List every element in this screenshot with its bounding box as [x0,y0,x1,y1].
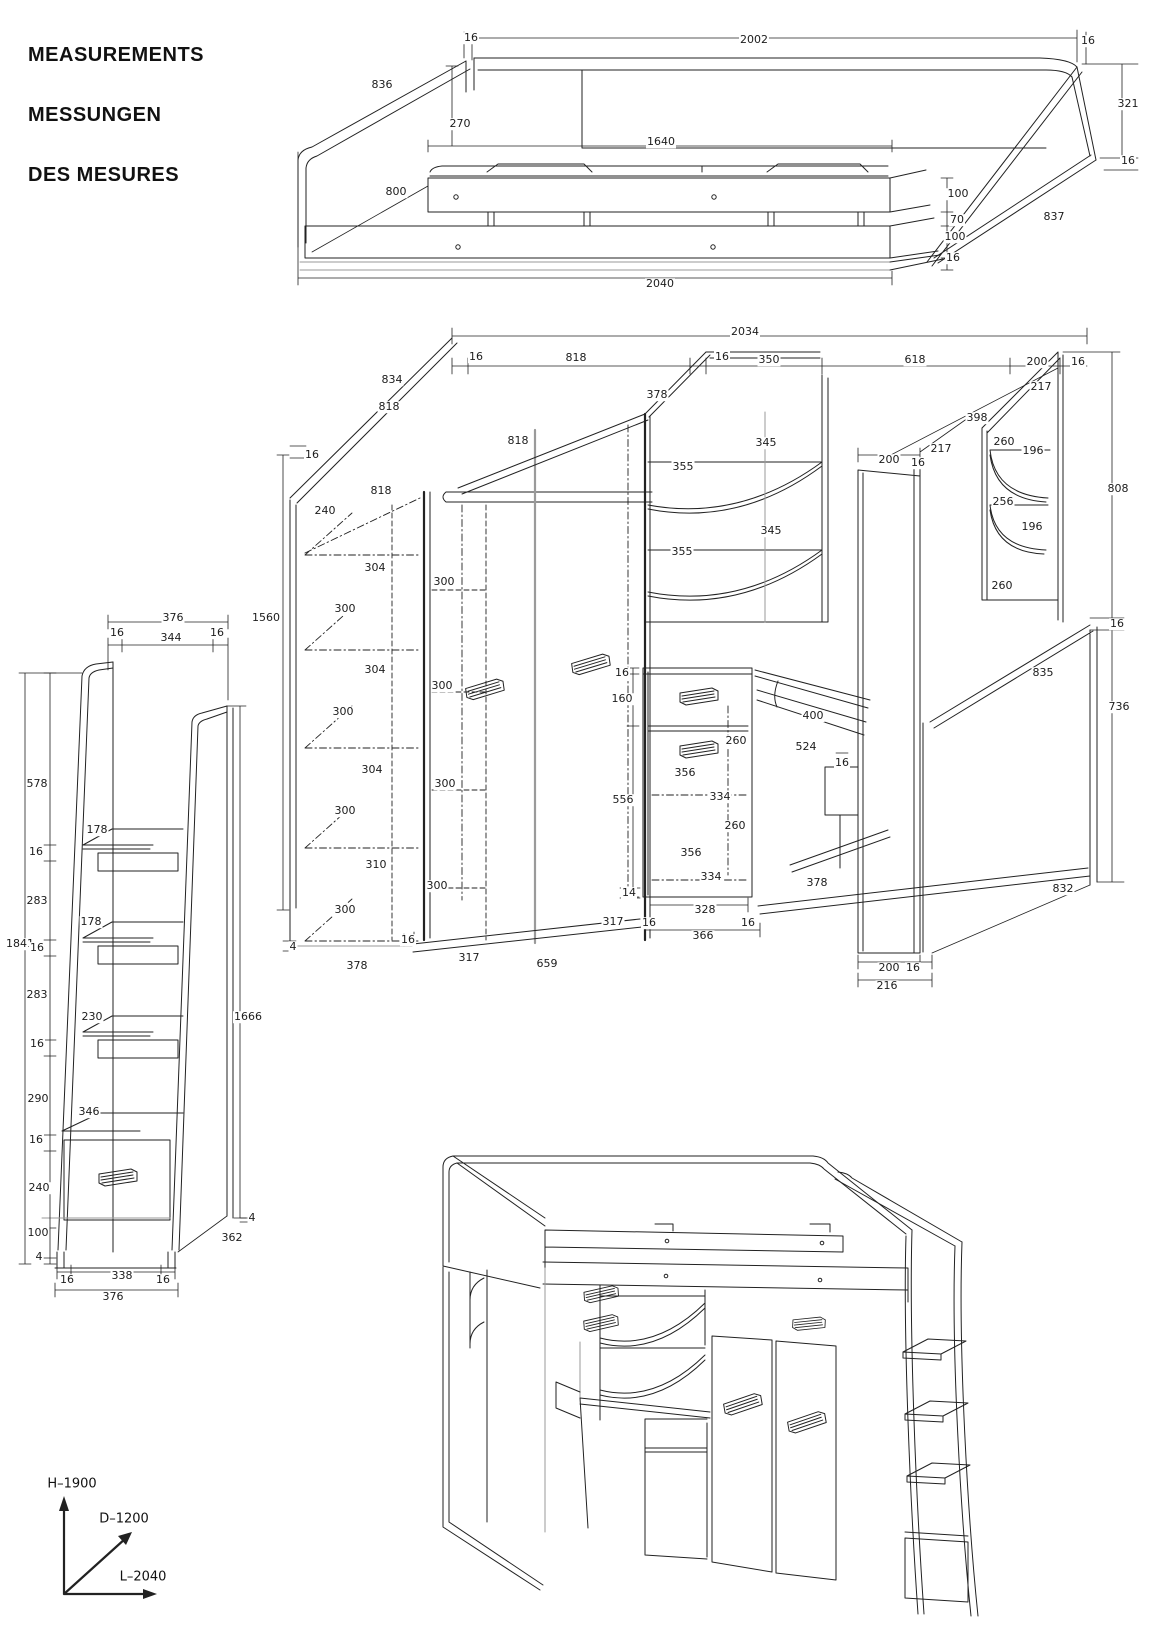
dim-label-ladder-side: 338 [111,1270,134,1282]
dim-label-wardrobe-interior: 355 [671,546,694,558]
dim-label-ladder-side: 16 [109,627,125,639]
dim-label-wardrobe-interior: 304 [364,664,387,676]
dim-label-wardrobe-interior: 378 [646,389,669,401]
dim-label-wardrobe-interior: 400 [802,710,825,722]
dim-label-wardrobe-interior: 160 [611,693,634,705]
dim-label-wardrobe-interior: 14 [621,887,637,899]
dim-label-wardrobe-interior: 16 [910,457,926,469]
dim-label-ladder-side: 178 [86,824,109,836]
dim-label-wardrobe-interior: 256 [992,496,1015,508]
dim-label-wardrobe-interior: 618 [904,354,927,366]
dim-label-wardrobe-interior: 356 [680,847,703,859]
dim-label-ladder-side: 346 [78,1106,101,1118]
dim-label-wardrobe-interior: 334 [709,791,732,803]
dim-label-ladder-side: 362 [221,1232,244,1244]
dim-label-ladder-side: 376 [162,612,185,624]
dim-label-wardrobe-interior: 200 [1026,356,1049,368]
dim-label-ladder-side: 16 [59,1274,75,1286]
dim-label-wardrobe-interior: 216 [876,980,899,992]
dim-label-wardrobe-interior: 310 [365,859,388,871]
dim-label-ladder-side: 376 [102,1291,125,1303]
dim-label-ladder-side: 230 [81,1011,104,1023]
dim-label-wardrobe-interior: 736 [1108,701,1131,713]
dim-label-ladder-side: 16 [155,1274,171,1286]
dim-label-ladder-side: 4 [248,1212,257,1224]
dim-label-wardrobe-interior: 834 [381,374,404,386]
dim-label-wardrobe-interior: 200 [878,454,901,466]
dim-label-wardrobe-interior: 808 [1107,483,1130,495]
dim-label-wardrobe-interior: 350 [758,354,781,366]
dim-label-wardrobe-interior: 16 [834,757,850,769]
dim-label-wardrobe-interior: 398 [966,412,989,424]
dim-label-bed-base: 100 [947,188,970,200]
dim-label-ladder-side: 290 [27,1093,50,1105]
dim-label-bed-base: 270 [449,118,472,130]
dim-label-wardrobe-interior: 16 [714,351,730,363]
dim-label-ladder-side: 100 [27,1227,50,1239]
dim-label-wardrobe-interior: 356 [674,767,697,779]
dim-label-wardrobe-interior: 16 [1070,356,1086,368]
dim-label-wardrobe-interior: 366 [692,930,715,942]
dim-label-wardrobe-interior: 818 [565,352,588,364]
dim-label-wardrobe-interior: 345 [755,437,778,449]
dim-label-wardrobe-interior: 818 [378,401,401,413]
dim-label-wardrobe-interior: 659 [536,958,559,970]
dim-label-wardrobe-interior: 317 [458,952,481,964]
dim-label-wardrobe-interior: 300 [431,680,454,692]
dim-label-wardrobe-interior: 260 [725,735,748,747]
dim-label-wardrobe-interior: 304 [364,562,387,574]
dim-label-wardrobe-interior: 524 [795,741,818,753]
dim-label-wardrobe-interior: 260 [724,820,747,832]
dim-label-bed-base: 70 [949,214,965,226]
dim-label-bed-base: 16 [463,32,479,44]
dim-label-wardrobe-interior: 4 [289,941,298,953]
dim-label-ladder-side: 16 [29,1038,45,1050]
dim-label-ladder-side: 16 [28,1134,44,1146]
title-line-fr: DES MESURES [28,164,204,187]
dim-label-ladder-side: 283 [26,989,49,1001]
dim-label-wardrobe-interior: 300 [426,880,449,892]
axis-height-label: H–1900 [47,1477,96,1492]
dimension-labels-layer: 1620021683627016403211680010070100168372… [0,0,1154,1628]
dim-label-wardrobe-interior: 345 [760,525,783,537]
dim-label-wardrobe-interior: 196 [1021,521,1044,533]
dim-label-ladder-side: 283 [26,895,49,907]
dim-label-wardrobe-interior: 300 [334,603,357,615]
dim-label-wardrobe-interior: 300 [334,805,357,817]
dim-label-wardrobe-interior: 2034 [730,326,760,338]
dim-label-ladder-side: 178 [80,916,103,928]
dim-label-wardrobe-interior: 317 [602,916,625,928]
dim-label-bed-base: 1640 [646,136,676,148]
dim-label-wardrobe-interior: 378 [806,877,829,889]
dim-label-bed-base: 836 [371,79,394,91]
dim-label-wardrobe-interior: 260 [991,580,1014,592]
dim-label-bed-base: 2002 [739,34,769,46]
axis-depth-label: D–1200 [99,1512,149,1527]
dim-label-wardrobe-interior: 196 [1022,445,1045,457]
dim-label-wardrobe-interior: 556 [612,794,635,806]
dim-label-ladder-side: 1666 [233,1011,263,1023]
dim-label-bed-base: 837 [1043,211,1066,223]
sheet-title: MEASUREMENTS MESSUNGEN DES MESURES [28,44,204,224]
dim-label-wardrobe-interior: 260 [993,436,1016,448]
dim-label-ladder-side: 240 [28,1182,51,1194]
dim-label-wardrobe-interior: 300 [334,904,357,916]
dim-label-wardrobe-interior: 300 [433,576,456,588]
dim-label-bed-base: 16 [1120,155,1136,167]
dim-label-bed-base: 16 [945,252,961,264]
dim-label-ladder-side: 344 [160,632,183,644]
dim-label-bed-base: 16 [1080,35,1096,47]
dim-label-wardrobe-interior: 1560 [251,612,281,624]
title-line-de: MESSUNGEN [28,104,204,127]
dim-label-wardrobe-interior: 300 [434,778,457,790]
dim-label-wardrobe-interior: 16 [641,917,657,929]
dim-label-wardrobe-interior: 832 [1052,883,1075,895]
dim-label-wardrobe-interior: 334 [700,871,723,883]
dim-label-wardrobe-interior: 16 [468,351,484,363]
dim-label-wardrobe-interior: 378 [346,960,369,972]
dim-label-bed-base: 321 [1117,98,1140,110]
dim-label-wardrobe-interior: 304 [361,764,384,776]
dim-label-ladder-side: 16 [209,627,225,639]
dim-label-wardrobe-interior: 835 [1032,667,1055,679]
dim-label-bed-base: 2040 [645,278,675,290]
dim-label-wardrobe-interior: 16 [1109,618,1125,630]
dim-label-wardrobe-interior: 16 [400,934,416,946]
dim-label-wardrobe-interior: 818 [507,435,530,447]
dim-label-ladder-side: 16 [29,942,45,954]
measurement-sheet: 1620021683627016403211680010070100168372… [0,0,1154,1628]
dim-label-ladder-side: 578 [26,778,49,790]
dim-label-wardrobe-interior: 217 [930,443,953,455]
dim-label-wardrobe-interior: 240 [314,505,337,517]
dim-label-wardrobe-interior: 217 [1030,381,1053,393]
dim-label-wardrobe-interior: 328 [694,904,717,916]
dim-label-wardrobe-interior: 16 [614,667,630,679]
dim-label-wardrobe-interior: 818 [370,485,393,497]
dim-label-bed-base: 100 [944,231,967,243]
axis-length-label: L–2040 [120,1570,167,1585]
title-line-en: MEASUREMENTS [28,44,204,67]
dim-label-wardrobe-interior: 16 [905,962,921,974]
dim-label-bed-base: 800 [385,186,408,198]
dim-label-wardrobe-interior: 355 [672,461,695,473]
dim-label-wardrobe-interior: 300 [332,706,355,718]
dim-label-wardrobe-interior: 16 [740,917,756,929]
dim-label-ladder-side: 4 [35,1251,44,1263]
dim-label-wardrobe-interior: 200 [878,962,901,974]
dim-label-wardrobe-interior: 16 [304,449,320,461]
dim-label-ladder-side: 16 [28,846,44,858]
